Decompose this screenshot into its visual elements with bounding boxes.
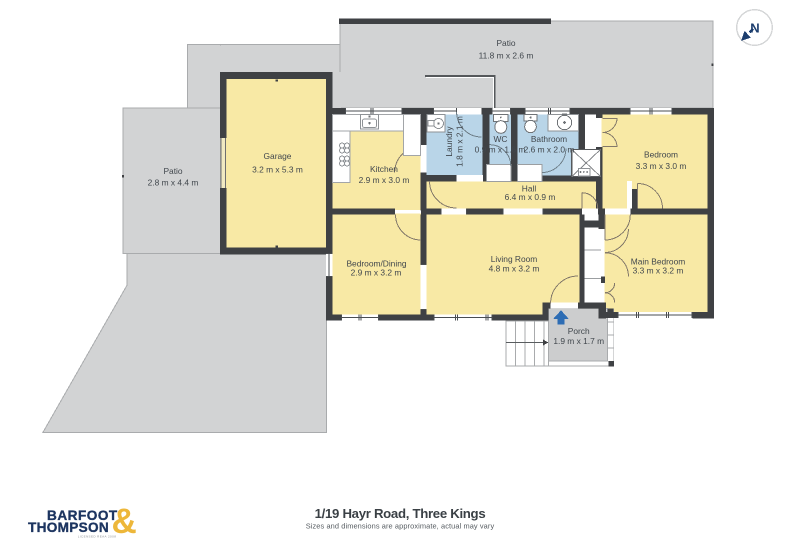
svg-text:2.9 m x 3.0 m: 2.9 m x 3.0 m	[359, 175, 410, 185]
svg-text:3.3 m x 3.0 m: 3.3 m x 3.0 m	[636, 161, 687, 171]
svg-text:3.2 m x 5.3 m: 3.2 m x 5.3 m	[252, 165, 303, 175]
svg-text:THOMPSON: THOMPSON	[28, 520, 109, 535]
svg-text:Kitchen: Kitchen	[370, 164, 398, 174]
svg-text:Garage: Garage	[264, 151, 292, 161]
svg-text:Bathroom: Bathroom	[531, 134, 567, 144]
svg-text:4.8 m x 3.2 m: 4.8 m x 3.2 m	[489, 264, 540, 274]
svg-text:WC: WC	[494, 134, 508, 144]
svg-text:Living Room: Living Room	[491, 254, 538, 264]
svg-text:Sizes and dimensions are appro: Sizes and dimensions are approximate, ac…	[306, 522, 495, 531]
svg-text:11.8 m x 2.6 m: 11.8 m x 2.6 m	[479, 51, 534, 61]
svg-text:2.8 m x 4.4 m: 2.8 m x 4.4 m	[148, 178, 199, 188]
svg-text:2.6 m x 2.0 m: 2.6 m x 2.0 m	[524, 145, 575, 155]
svg-text:N: N	[750, 21, 759, 36]
svg-text:Patio: Patio	[163, 166, 182, 176]
svg-text:Patio: Patio	[496, 38, 515, 48]
svg-text:Laundry: Laundry	[444, 126, 454, 157]
svg-text:6.4 m x 0.9 m: 6.4 m x 0.9 m	[505, 192, 556, 202]
svg-text:Porch: Porch	[568, 326, 590, 336]
svg-text:Bedroom: Bedroom	[644, 150, 678, 160]
svg-text:2.9 m x 3.2 m: 2.9 m x 3.2 m	[351, 268, 402, 278]
svg-text:0.9 m x 1.6 m: 0.9 m x 1.6 m	[475, 145, 526, 155]
svg-text:1/19 Hayr Road, Three Kings: 1/19 Hayr Road, Three Kings	[315, 506, 486, 521]
svg-text:1.9 m x 1.7 m: 1.9 m x 1.7 m	[553, 336, 604, 346]
svg-text:LICENSED REAA 2008: LICENSED REAA 2008	[78, 535, 117, 539]
svg-text:3.3 m x 3.2 m: 3.3 m x 3.2 m	[633, 266, 684, 276]
svg-text:1.8 m x 2.1 m: 1.8 m x 2.1 m	[455, 116, 465, 167]
